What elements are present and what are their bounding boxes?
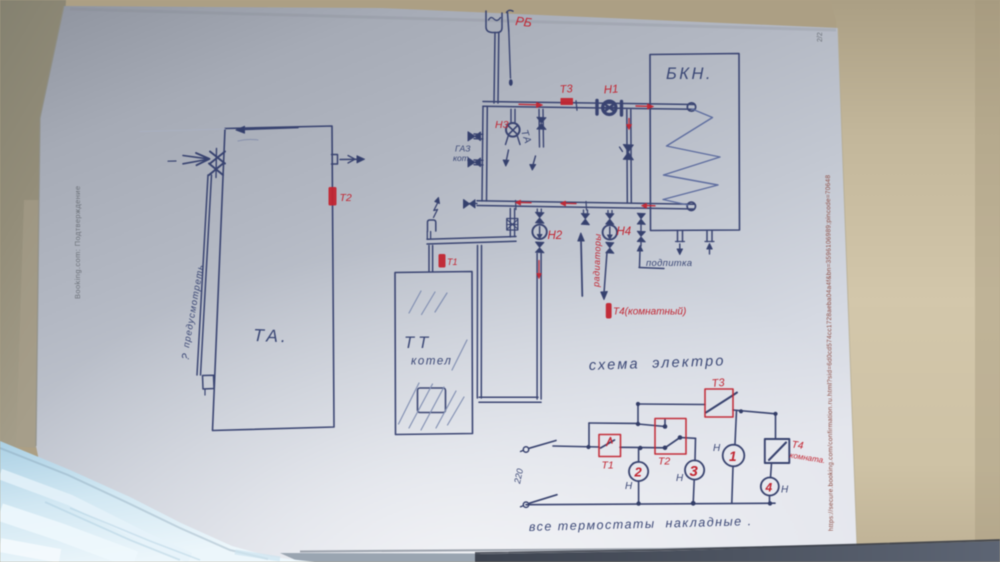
svg-text:подпитка: подпитка bbox=[646, 258, 692, 269]
svg-text:Т1: Т1 bbox=[602, 460, 614, 472]
svg-text:БКН.: БКН. bbox=[666, 65, 713, 83]
svg-text:кот.: кот. bbox=[453, 153, 471, 163]
svg-text:Т2: Т2 bbox=[340, 192, 352, 204]
svg-text:Н: Н bbox=[625, 481, 633, 492]
svg-text:Booking.com: Подтверждение: Booking.com: Подтверждение bbox=[73, 186, 82, 299]
svg-text:2: 2 bbox=[634, 465, 643, 480]
svg-text:Н2: Н2 bbox=[548, 230, 563, 242]
svg-text:Т3: Т3 bbox=[711, 377, 726, 390]
svg-text:котел: котел bbox=[411, 356, 452, 368]
svg-text:3: 3 bbox=[690, 463, 699, 480]
svg-text:ТТ: ТТ bbox=[404, 334, 432, 352]
svg-text:Н1: Н1 bbox=[603, 83, 619, 96]
svg-text:2/2: 2/2 bbox=[817, 32, 824, 42]
svg-text:Т1: Т1 bbox=[447, 257, 458, 267]
svg-text:Т2: Т2 bbox=[658, 456, 670, 468]
svg-text:Н: Н bbox=[676, 473, 684, 484]
svg-text:1: 1 bbox=[729, 449, 737, 464]
svg-text:Т4(комнатный): Т4(комнатный) bbox=[613, 307, 686, 318]
svg-text:Т3: Т3 bbox=[559, 83, 574, 96]
svg-text:Н3: Н3 bbox=[495, 119, 509, 131]
svg-text:Н4: Н4 bbox=[617, 226, 632, 238]
svg-text:радиаторы: радиаторы bbox=[591, 233, 603, 288]
svg-text:Н: Н bbox=[781, 485, 789, 496]
svg-text:4: 4 bbox=[765, 481, 773, 495]
svg-text:РБ: РБ bbox=[515, 14, 533, 30]
svg-text:Н: Н bbox=[713, 443, 721, 454]
svg-text:ТА.: ТА. bbox=[253, 325, 289, 346]
svg-text:ГАЗ: ГАЗ bbox=[455, 144, 471, 154]
